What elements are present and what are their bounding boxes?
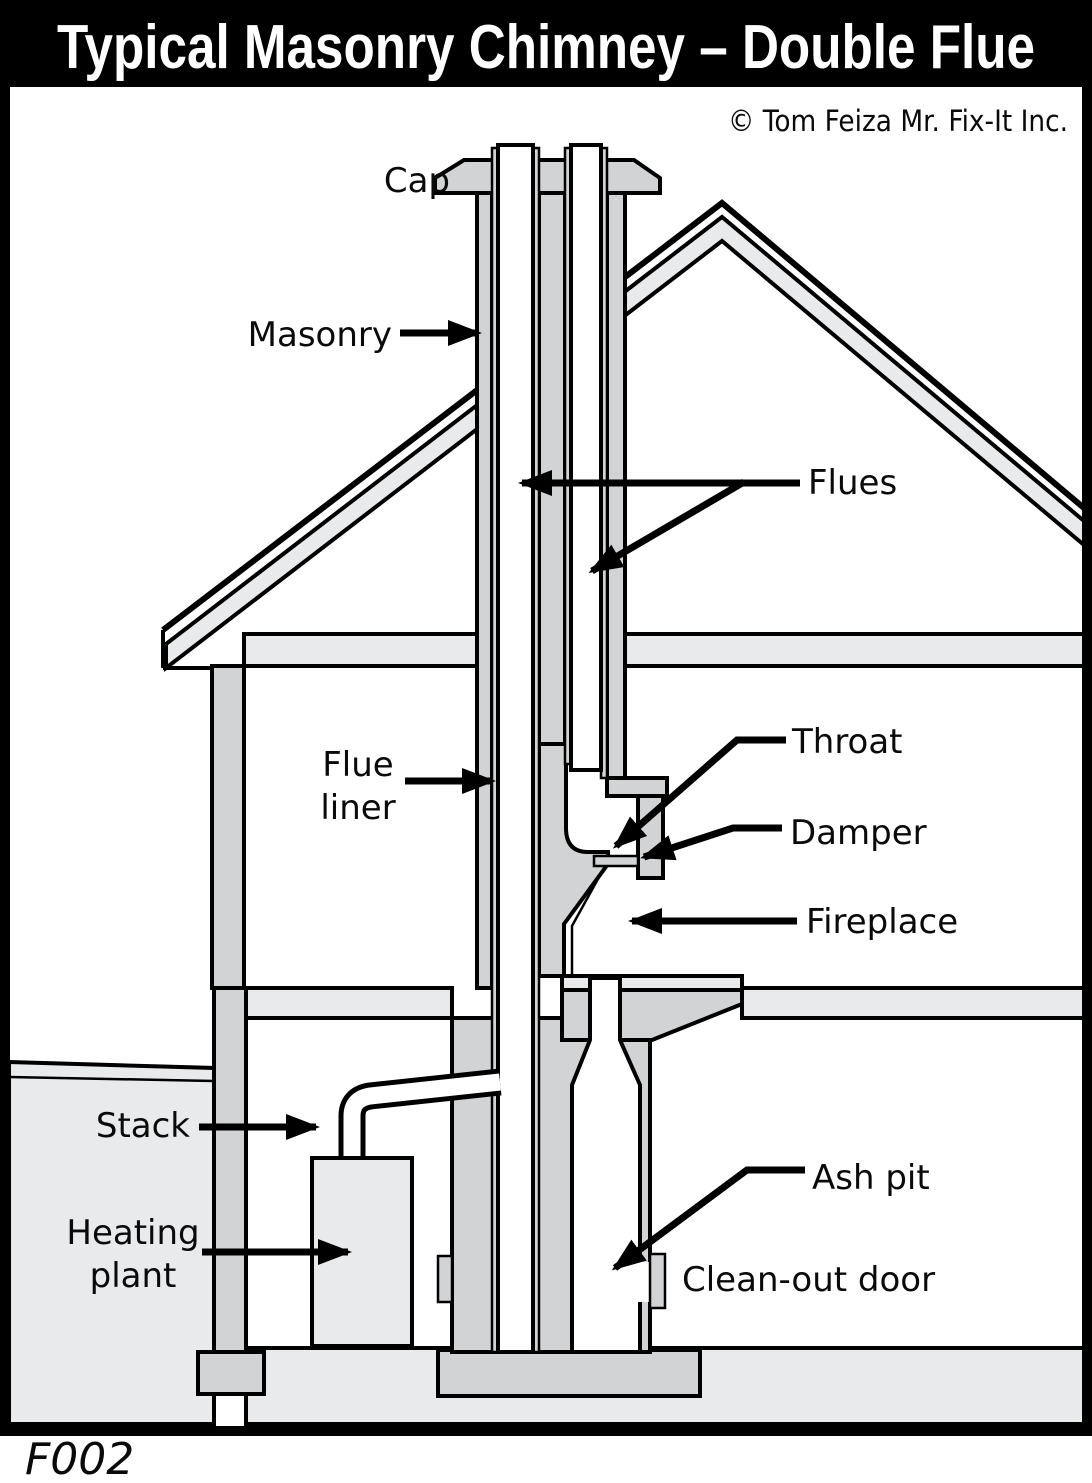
page-title: Typical Masonry Chimney – Double Flue [57, 13, 1035, 82]
label-throat: Throat [791, 722, 903, 762]
label-cap: Cap [384, 161, 450, 201]
left-clean-out-door-plate [438, 1256, 452, 1302]
label-flue-liner-line2: liner [320, 788, 395, 828]
diagram-canvas: Typical Masonry Chimney – Double Flue © … [0, 0, 1092, 1483]
ceiling-band-left [244, 634, 478, 666]
chimney-wythe [539, 193, 565, 744]
diagram-page: Typical Masonry Chimney – Double Flue © … [0, 0, 1092, 1483]
chimney-footing [438, 1350, 700, 1396]
left-foundation-wall [214, 988, 246, 1352]
label-flues: Flues [808, 463, 897, 503]
label-flue-liner-line1: Flue [322, 745, 393, 785]
credit-line: © Tom Feiza Mr. Fix-It Inc. [728, 104, 1068, 138]
label-stack: Stack [96, 1106, 190, 1146]
first-floor-band-left [244, 988, 452, 1018]
clean-out-door-plate [650, 1254, 665, 1308]
chimney-wall-left [477, 193, 492, 988]
ceiling-band-right [625, 634, 1084, 666]
first-floor-band-right [742, 988, 1084, 1018]
figure-id: F002 [25, 1434, 134, 1483]
lintel-ledge [607, 778, 667, 796]
label-masonry: Masonry [248, 315, 392, 355]
left-flue-interior [498, 145, 533, 1352]
label-ash-pit: Ash pit [812, 1158, 930, 1198]
label-clean-out-door: Clean-out door [682, 1260, 935, 1300]
left-footing [198, 1352, 264, 1394]
label-damper: Damper [790, 813, 927, 853]
clean-out-opening [636, 1262, 650, 1302]
right-flue-interior [571, 145, 601, 770]
label-heating-line1: Heating [66, 1213, 199, 1253]
damper-plate [594, 856, 638, 866]
label-heating-line2: plant [90, 1256, 177, 1296]
left-wall [212, 666, 244, 988]
label-fireplace: Fireplace [806, 902, 958, 942]
chimney-cap [435, 160, 660, 193]
